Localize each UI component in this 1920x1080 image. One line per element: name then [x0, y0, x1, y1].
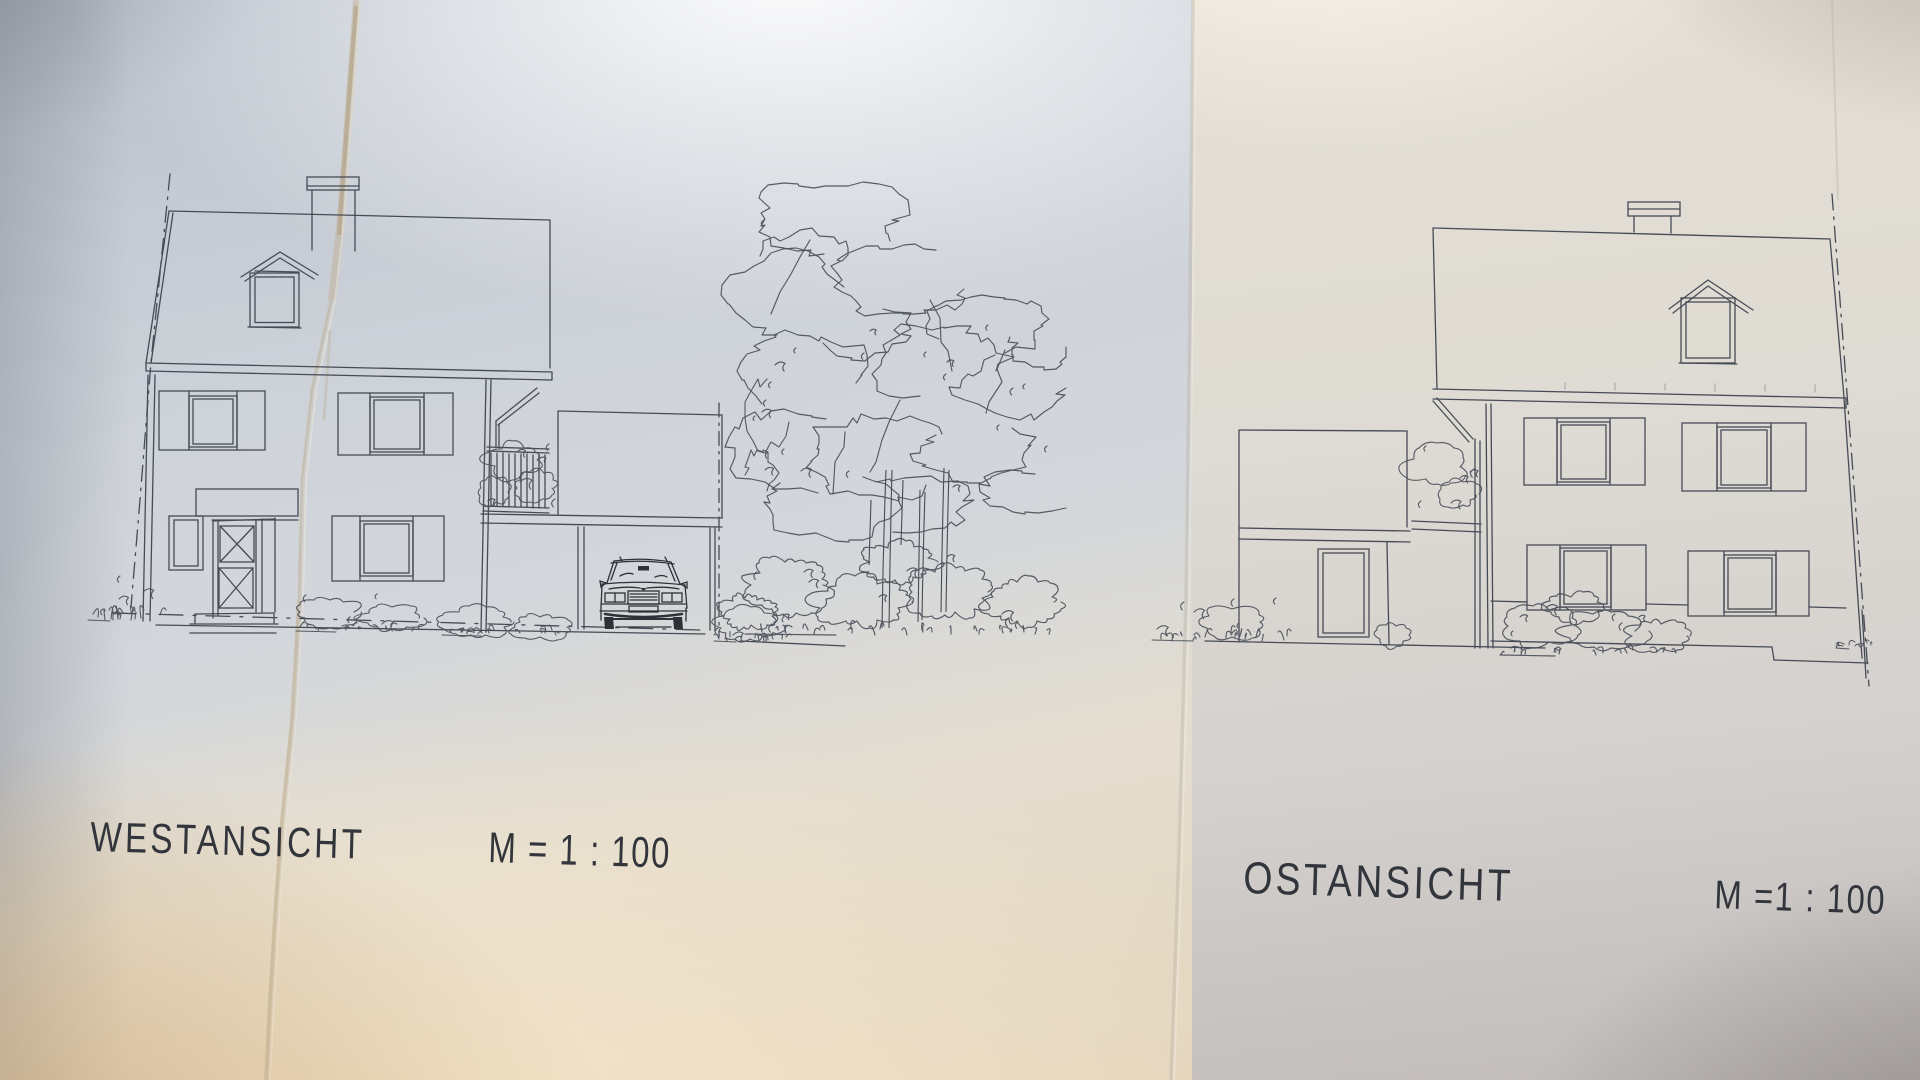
svg-text:M =1 : 100: M =1 : 100: [1714, 872, 1887, 923]
svg-text:OSTANSICHT: OSTANSICHT: [1243, 853, 1515, 911]
svg-text:M = 1 : 100: M = 1 : 100: [488, 824, 672, 878]
svg-text:WESTANSICHT: WESTANSICHT: [90, 814, 366, 868]
